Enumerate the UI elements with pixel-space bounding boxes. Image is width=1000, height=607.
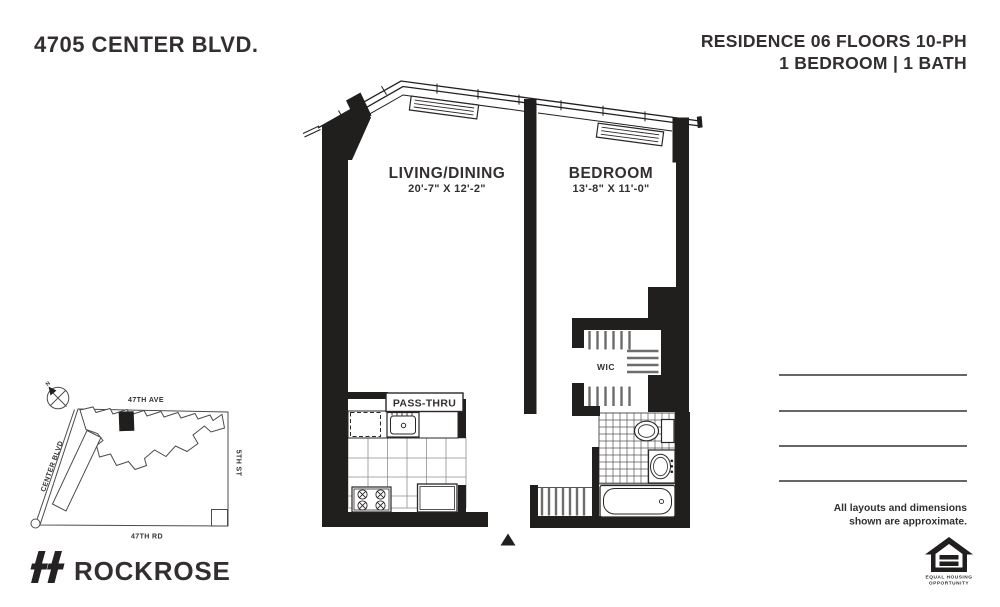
disclaimer-line-2: shown are approximate.: [849, 517, 967, 528]
dishwasher: [351, 413, 381, 437]
note-lines: [779, 375, 967, 481]
vanity-sink: [649, 450, 676, 483]
unit-info-line: 1 BEDROOM | 1 BATH: [779, 53, 967, 73]
sheet-graphics: 4705 CENTER BLVD. RESIDENCE 06 FLOORS 10…: [0, 0, 1000, 607]
disclaimer-line-1: All layouts and dimensions: [834, 503, 968, 514]
refrigerator: [418, 484, 458, 512]
building-footprint: [80, 407, 225, 470]
street-label-top: 47TH AVE: [128, 397, 164, 404]
rockrose-glyph-icon: [31, 551, 65, 583]
unit-location-marker: [119, 411, 135, 431]
street-label-right: 5TH ST: [235, 450, 242, 477]
floorplan-sheet: 4705 CENTER BLVD. RESIDENCE 06 FLOORS 10…: [0, 0, 1000, 607]
bedroom-dims: 13'-8" X 11'-0": [572, 183, 649, 195]
bedroom-vent: [596, 123, 663, 146]
page-title: 4705 CENTER BLVD.: [34, 32, 258, 57]
living-vent: [409, 96, 478, 119]
pass-thru-label: PASS-THRU: [393, 398, 456, 410]
site-map: N 47TH AVE 5TH ST 47TH RD CENTER BLVD: [31, 381, 242, 541]
compass-icon: N: [45, 381, 69, 409]
bedroom-label: BEDROOM: [569, 165, 653, 182]
compass-north-label: N: [45, 381, 52, 388]
residence-line: RESIDENCE 06 FLOORS 10-PH: [701, 31, 967, 51]
entry-triangle-icon: [501, 534, 516, 546]
stove: [352, 487, 391, 512]
equal-housing-icon: [925, 537, 973, 572]
eho-caption-line-2: OPPORTUNITY: [929, 581, 969, 587]
toilet: [635, 420, 675, 443]
floor-plan: PASS-THRU: [303, 81, 703, 546]
living-room-label: LIVING/DINING: [389, 165, 506, 182]
entry-closet: [538, 488, 592, 516]
kitchen-sink: [387, 413, 419, 438]
rockrose-logo: ROCKROSE: [31, 551, 231, 586]
eho-caption-line-1: EQUAL HOUSING: [926, 575, 973, 581]
walls: [322, 93, 703, 529]
site-small-lot: [212, 510, 228, 527]
street-label-bottom: 47TH RD: [131, 534, 163, 541]
living-room-dims: 20'-7" X 12'-2": [408, 183, 486, 195]
bathtub: [600, 486, 675, 518]
wic-label: WIC: [597, 362, 615, 372]
brand-name: ROCKROSE: [74, 556, 231, 586]
